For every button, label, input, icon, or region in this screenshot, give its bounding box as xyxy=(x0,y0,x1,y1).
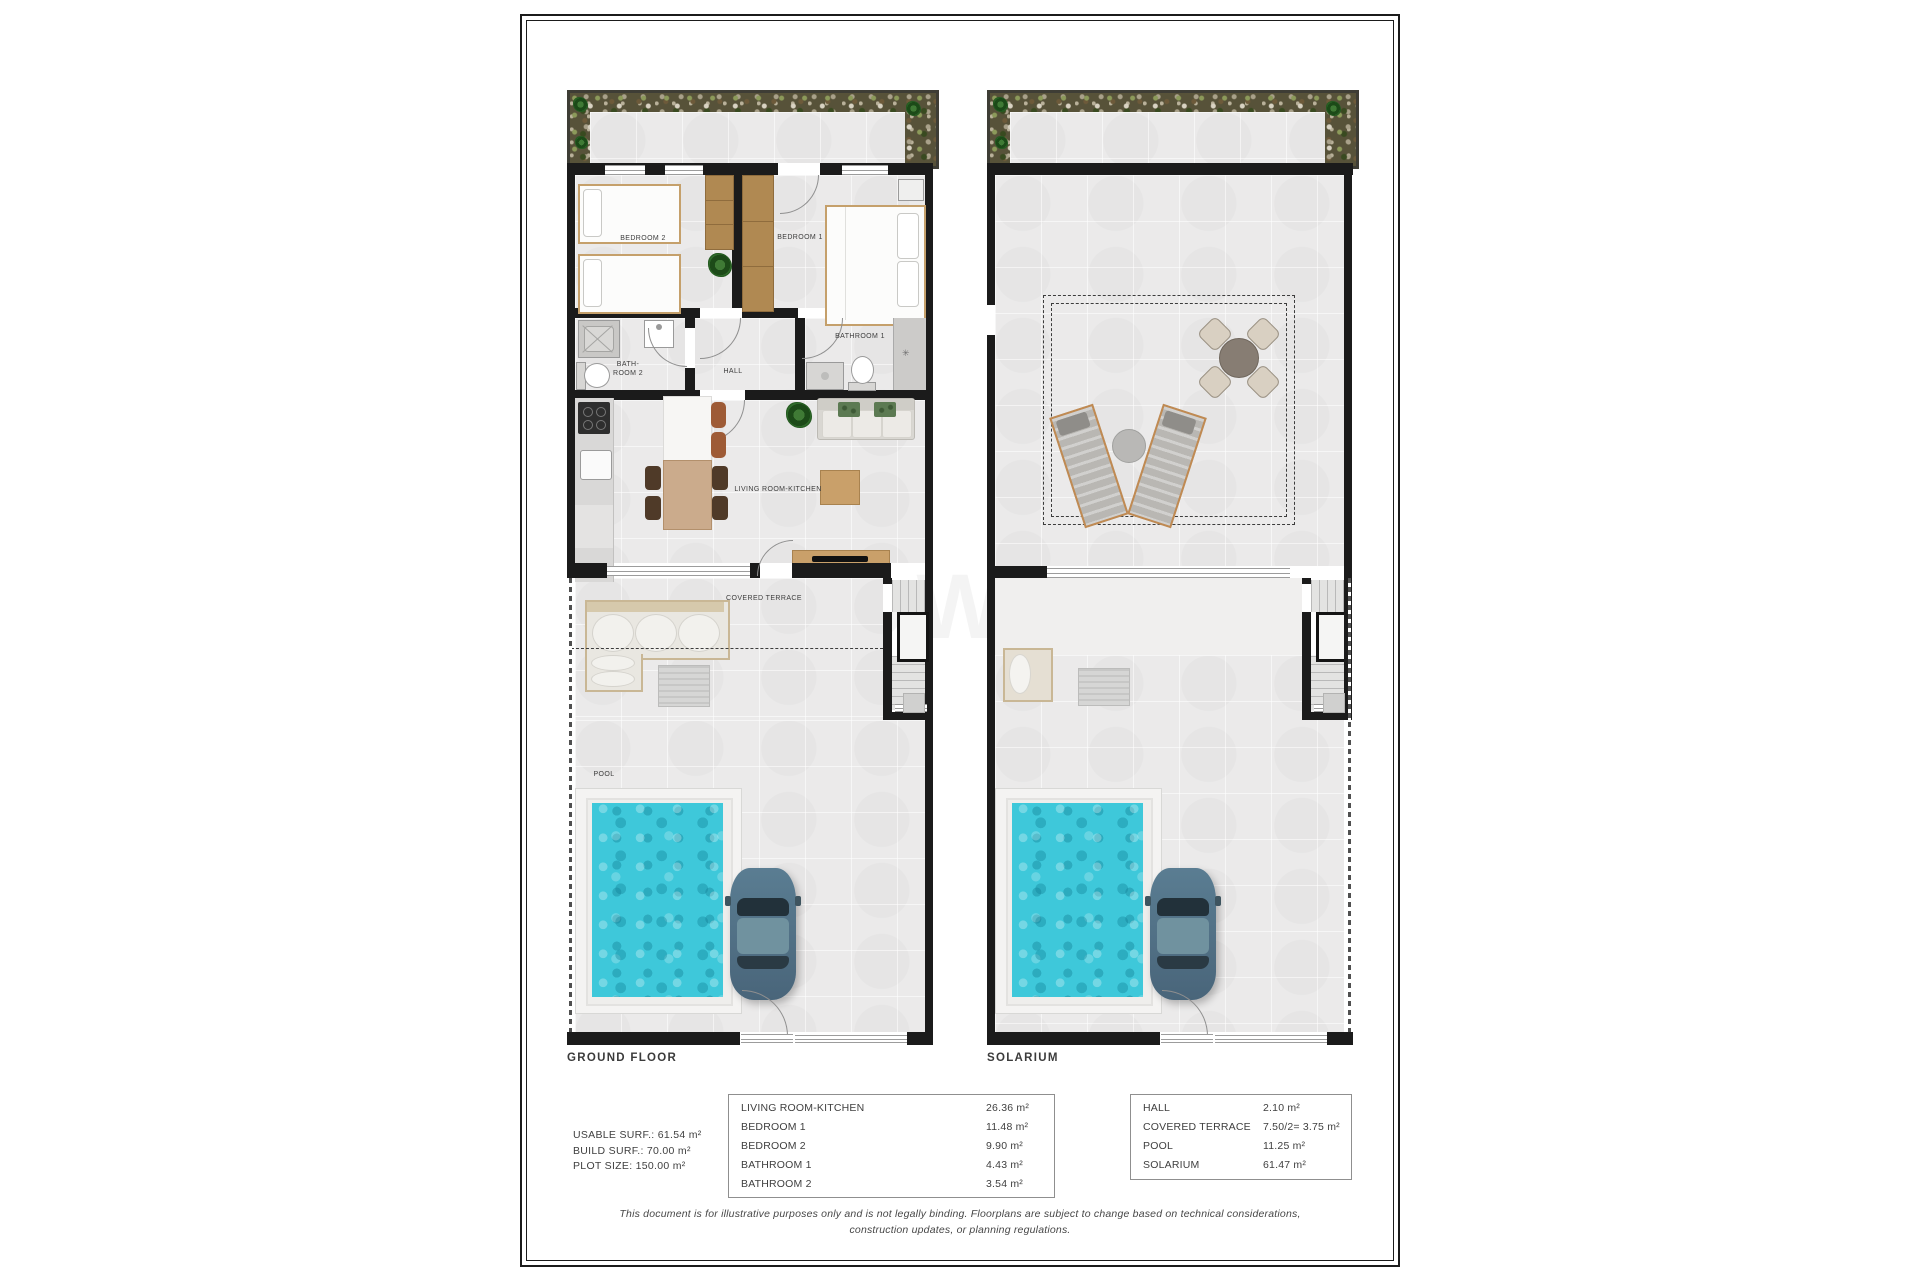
fence-glass xyxy=(1215,1035,1327,1043)
sofa-pillow xyxy=(838,402,860,417)
door-opening xyxy=(778,163,820,175)
wall xyxy=(987,163,1353,175)
sliding-door xyxy=(607,566,750,576)
bath-hall-floor xyxy=(575,318,925,390)
terrace-dashed-line xyxy=(571,648,883,649)
patio-table xyxy=(1219,338,1259,378)
car xyxy=(1150,868,1216,1000)
usable-surface: USABLE SURF.: 61.54 m² xyxy=(573,1128,702,1144)
bar-stool xyxy=(711,402,726,428)
bar-stool xyxy=(711,432,726,458)
fence-glass xyxy=(795,1035,907,1043)
pillow xyxy=(897,213,919,259)
doormat xyxy=(1078,668,1130,706)
exterior-areas-table: HALL2.10 m² COVERED TERRACE7.50/2= 3.75 … xyxy=(1130,1094,1352,1180)
plant-icon xyxy=(786,402,812,428)
shower-tray xyxy=(578,320,620,358)
ground-floor-title: GROUND FLOOR xyxy=(567,1052,677,1064)
table-row: LIVING ROOM-KITCHEN26.36 m² xyxy=(741,1102,1046,1121)
room-label-terrace: COVERED TERRACE xyxy=(719,594,809,603)
wall xyxy=(1327,1032,1353,1045)
sliding-door xyxy=(1047,568,1290,578)
surface-stats: USABLE SURF.: 61.54 m² BUILD SURF.: 70.0… xyxy=(573,1128,702,1175)
bed-fold-line xyxy=(845,207,846,320)
solarium-title: SOLARIUM xyxy=(987,1052,1059,1064)
stair-core xyxy=(897,612,929,662)
pillow xyxy=(897,261,919,307)
pillow xyxy=(583,259,602,307)
table-row: BATHROOM 14.43 m² xyxy=(741,1159,1046,1178)
stair-wall xyxy=(883,712,933,720)
dining-chair xyxy=(645,466,661,490)
plant-icon xyxy=(575,136,588,149)
plant-icon xyxy=(1326,101,1341,116)
kitchen-island xyxy=(663,396,712,462)
floorplan-document: OWEN xyxy=(0,0,1920,1280)
room-label-bathroom2: BATH- ROOM 2 xyxy=(600,360,656,378)
window xyxy=(665,165,703,175)
table-row: COVERED TERRACE7.50/2= 3.75 m² xyxy=(1143,1121,1343,1140)
roof-band xyxy=(995,578,1302,656)
window xyxy=(842,165,888,175)
disclaimer: This document is for illustrative purpos… xyxy=(560,1206,1360,1238)
entry-gate xyxy=(1161,1034,1213,1043)
pillow xyxy=(583,189,602,237)
room-label-pool: POOL xyxy=(584,770,624,779)
utility-box xyxy=(903,693,925,713)
dining-chair xyxy=(712,496,728,520)
side-table xyxy=(1112,429,1146,463)
table-row: POOL11.25 m² xyxy=(1143,1140,1343,1159)
window xyxy=(605,165,645,175)
plant-icon xyxy=(906,101,921,116)
room-label-hall: HALL xyxy=(708,367,758,376)
plant-icon xyxy=(995,136,1008,149)
vanity xyxy=(806,362,844,390)
outdoor-sofa-chaise xyxy=(585,654,643,692)
door-opening xyxy=(987,305,995,335)
car xyxy=(730,868,796,1000)
plot-boundary xyxy=(569,578,572,1032)
utility-box xyxy=(1323,693,1345,713)
stair-door-opening xyxy=(1302,584,1311,612)
wall xyxy=(567,163,575,578)
stair-door-opening xyxy=(883,584,892,612)
plant-icon xyxy=(573,97,588,112)
sofa-pillow xyxy=(874,402,896,417)
table-row: BEDROOM 111.48 m² xyxy=(741,1121,1046,1140)
plot-size: PLOT SIZE: 150.00 m² xyxy=(573,1159,702,1175)
stairs-upper xyxy=(1311,580,1344,612)
room-label-bedroom2: BEDROOM 2 xyxy=(600,234,686,243)
disclaimer-line1: This document is for illustrative purpos… xyxy=(560,1206,1360,1222)
outdoor-sofa xyxy=(585,600,730,660)
table-row: BATHROOM 23.54 m² xyxy=(741,1178,1046,1197)
disclaimer-line2: construction updates, or planning regula… xyxy=(560,1222,1360,1238)
wall xyxy=(792,563,891,578)
kitchen-sink xyxy=(580,450,612,480)
chaise-lounger xyxy=(1003,648,1053,702)
interior-areas-table: LIVING ROOM-KITCHEN26.36 m² BEDROOM 111.… xyxy=(728,1094,1055,1198)
room-label-living: LIVING ROOM-KITCHEN xyxy=(728,485,828,494)
wardrobe xyxy=(742,175,774,312)
wall xyxy=(567,1032,740,1045)
nightstand xyxy=(898,179,924,201)
sofa xyxy=(817,398,915,440)
plant-icon xyxy=(993,97,1008,112)
wall xyxy=(987,1032,1160,1045)
dining-chair xyxy=(712,466,728,490)
wall xyxy=(567,563,607,578)
stairs-upper xyxy=(892,580,925,612)
front-yard xyxy=(1010,112,1325,163)
stove xyxy=(578,402,610,434)
toilet-bowl xyxy=(851,356,874,384)
door-opening xyxy=(700,308,742,318)
table-row: BEDROOM 29.90 m² xyxy=(741,1140,1046,1159)
wall xyxy=(987,566,1047,578)
wardrobe xyxy=(705,175,734,250)
plot-boundary xyxy=(1348,578,1351,1032)
entry-gate xyxy=(741,1034,793,1043)
dining-chair xyxy=(645,496,661,520)
pool-water xyxy=(1012,803,1143,997)
front-yard xyxy=(590,112,905,163)
room-label-bathroom1: BATHROOM 1 xyxy=(817,332,903,341)
shower-head-icon: ✳ xyxy=(902,348,910,359)
wall xyxy=(987,163,995,1045)
wall xyxy=(1344,163,1352,578)
doormat xyxy=(658,665,710,707)
room-label-bedroom1: BEDROOM 1 xyxy=(757,233,843,242)
tv xyxy=(812,556,868,562)
wall xyxy=(925,163,933,1045)
dining-table xyxy=(663,460,712,530)
wall xyxy=(907,1032,933,1045)
build-surface: BUILD SURF.: 70.00 m² xyxy=(573,1144,702,1160)
table-row: HALL2.10 m² xyxy=(1143,1102,1343,1121)
pool-water xyxy=(592,803,723,997)
table-row: SOLARIUM61.47 m² xyxy=(1143,1159,1343,1178)
plant-icon xyxy=(708,253,732,277)
counter-corner xyxy=(575,505,613,548)
